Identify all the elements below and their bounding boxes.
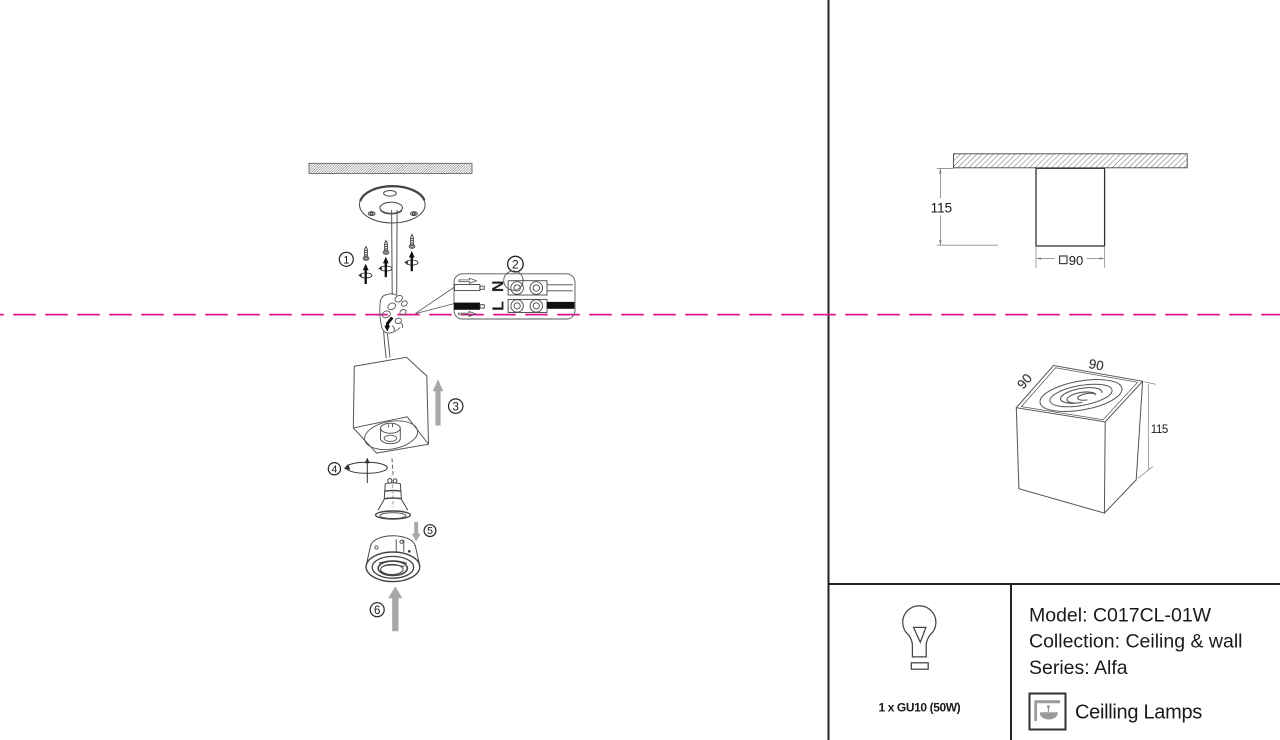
svg-text:2: 2	[512, 258, 519, 272]
svg-text:115: 115	[931, 200, 953, 215]
svg-text:90: 90	[1088, 356, 1105, 373]
svg-text:1: 1	[343, 254, 349, 266]
svg-text:Collection: Ceiling & wall: Collection: Ceiling & wall	[1029, 631, 1243, 653]
svg-text:5: 5	[427, 525, 433, 537]
svg-text:4: 4	[331, 463, 337, 475]
svg-text:90: 90	[1069, 253, 1083, 268]
svg-text:1 x GU10 (50W): 1 x GU10 (50W)	[879, 700, 961, 714]
svg-text:Model: C017CL-01W: Model: C017CL-01W	[1029, 605, 1212, 627]
svg-text:L: L	[491, 301, 508, 311]
svg-text:3: 3	[452, 401, 458, 413]
svg-text:Series: Alfa: Series: Alfa	[1029, 657, 1128, 679]
svg-text:Ceilling Lamps: Ceilling Lamps	[1075, 701, 1202, 723]
svg-text:N: N	[488, 281, 505, 293]
svg-text:115: 115	[1151, 424, 1168, 436]
svg-text:6: 6	[374, 605, 380, 617]
